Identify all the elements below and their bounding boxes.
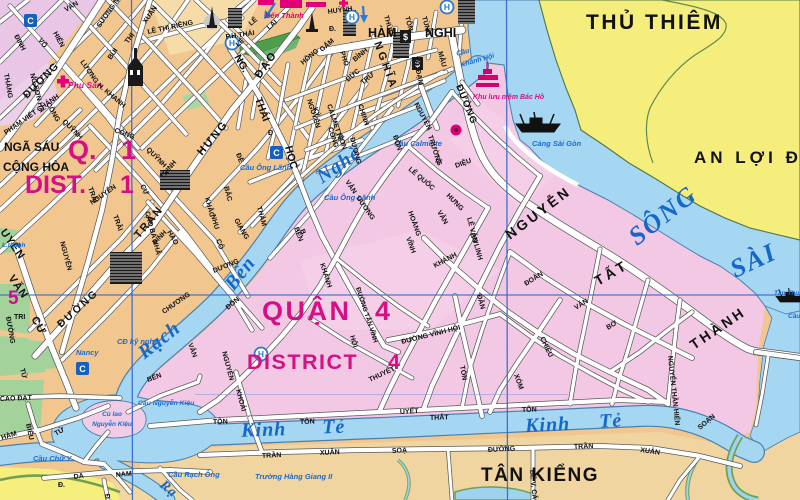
svg-text:NAM: NAM bbox=[116, 471, 133, 479]
svg-text:Cầu Ông Lãnh: Cầu Ông Lãnh bbox=[240, 163, 292, 172]
svg-text:Cảng Sài Gòn: Cảng Sài Gòn bbox=[532, 139, 582, 148]
svg-text:H: H bbox=[349, 12, 355, 22]
svg-text:TÂN KIỂNG: TÂN KIỂNG bbox=[481, 464, 599, 486]
svg-text:AN LỢI Đ: AN LỢI Đ bbox=[694, 148, 800, 167]
svg-text:NGÃ SÁU: NGÃ SÁU bbox=[4, 139, 59, 154]
svg-text:QUẬN: QUẬN bbox=[262, 295, 352, 326]
svg-text:Kinh: Kinh bbox=[240, 418, 287, 442]
svg-text:L.thanh: L.thanh bbox=[2, 242, 25, 249]
svg-text:C: C bbox=[79, 364, 86, 374]
svg-text:Kinh: Kinh bbox=[524, 413, 571, 437]
svg-text:Tân Thuận: Tân Thuận bbox=[774, 290, 800, 297]
svg-text:Nancy: Nancy bbox=[76, 348, 99, 357]
svg-text:DA: DA bbox=[73, 473, 84, 481]
svg-text:Cầu Ông Lãnh: Cầu Ông Lãnh bbox=[324, 193, 376, 202]
svg-text:Tẻ: Tẻ bbox=[599, 409, 623, 432]
svg-text:1: 1 bbox=[120, 171, 134, 199]
svg-text:Đ.: Đ. bbox=[329, 26, 336, 33]
svg-text:Đ. D: Đ. D bbox=[103, 494, 111, 500]
svg-text:Khu lưu niệm Bác Hồ: Khu lưu niệm Bác Hồ bbox=[473, 92, 545, 101]
svg-text:CAO ĐẠT: CAO ĐẠT bbox=[0, 395, 33, 403]
svg-text:DIST.: DIST. bbox=[25, 171, 86, 199]
svg-text:Đ: Đ bbox=[268, 130, 273, 137]
svg-text:TRI: TRI bbox=[14, 314, 25, 321]
svg-text:DISTRICT: DISTRICT bbox=[247, 350, 358, 374]
svg-text:1: 1 bbox=[121, 135, 136, 165]
svg-text:Q.: Q. bbox=[68, 135, 97, 165]
svg-text:C: C bbox=[273, 148, 280, 158]
svg-text:Cầu Rạch Ông: Cầu Rạch Ông bbox=[168, 470, 220, 479]
svg-text:Cầu Chữ Y: Cầu Chữ Y bbox=[33, 454, 73, 463]
svg-text:Tẻ: Tẻ bbox=[322, 416, 346, 439]
svg-text:Cầu Tần: Cầu Tần bbox=[788, 311, 800, 320]
svg-text:Cù lao: Cù lao bbox=[102, 411, 122, 418]
svg-text:Bến Thành: Bến Thành bbox=[265, 11, 304, 20]
svg-text:C: C bbox=[27, 16, 34, 26]
svg-text:Nguyễn Kiệu: Nguyễn Kiệu bbox=[92, 419, 132, 428]
svg-text:4: 4 bbox=[375, 296, 390, 326]
svg-text:Trường Hàng Giang II: Trường Hàng Giang II bbox=[255, 472, 333, 481]
svg-text:H: H bbox=[444, 2, 450, 12]
svg-text:$: $ bbox=[403, 32, 408, 42]
svg-text:CĐ kỹ nghệ: CĐ kỹ nghệ bbox=[117, 337, 158, 346]
svg-text:Cầu Nguyễn Kiệu: Cầu Nguyễn Kiệu bbox=[138, 398, 195, 407]
svg-text:THỦ THIÊM: THỦ THIÊM bbox=[586, 10, 723, 34]
svg-text:SOẠ: SOẠ bbox=[392, 447, 408, 455]
svg-text:CỘNG HÒA: CỘNG HÒA bbox=[3, 159, 69, 174]
svg-text:Đ.: Đ. bbox=[58, 482, 65, 489]
